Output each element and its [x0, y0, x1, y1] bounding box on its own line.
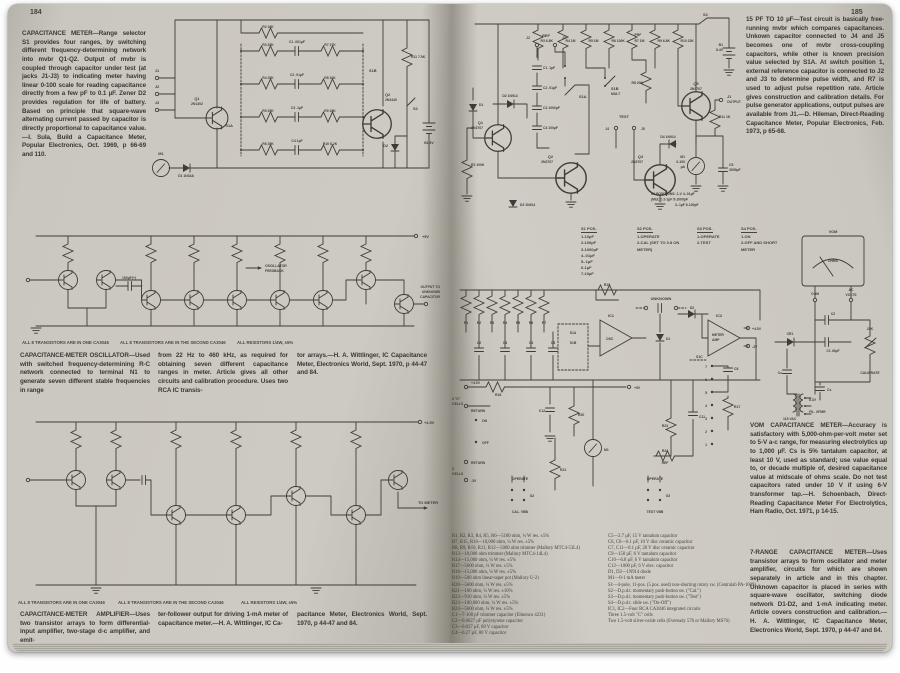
s3-header: S3 POS. — [697, 226, 713, 233]
lbl-s1a: S1A — [579, 94, 587, 99]
capacitor-c8 — [724, 368, 733, 372]
lbl-cells1a: 3 "C" — [452, 397, 461, 401]
zener-d2 — [391, 144, 399, 151]
page-number-left: 184 — [30, 9, 42, 16]
lbl-j3: J3 — [562, 36, 566, 40]
lbl-calibrate: CALIBRATE — [860, 371, 880, 375]
neg-terminal — [464, 478, 467, 481]
lbl-150uf: 150µF(+) — [122, 276, 136, 280]
lbl-b1v: 8.4V — [716, 48, 724, 52]
lbl-feedback-1: OSCILLATOR — [265, 264, 287, 268]
diode-d1 — [183, 164, 190, 172]
lbl-q3-type: 2N3707 — [631, 160, 643, 164]
note-ca3046-one: ALL 8 TRANSISTORS ARE IN ONE CA3046 — [22, 340, 109, 345]
lbl-osc: OSC — [606, 337, 614, 341]
parts-list-col2: C5—2.7 µF, 15 V tantalum capacitor C6, C… — [608, 534, 758, 625]
resistor-r9 — [319, 112, 342, 122]
lbl-r5: R5 1M — [589, 39, 599, 43]
unknown-capacitor — [658, 304, 662, 313]
resistor-r6 — [526, 294, 536, 317]
five-v-terminal — [627, 385, 630, 388]
lbl-s2: S2 — [703, 12, 709, 17]
lbl-output-2: UNKNOWN — [422, 290, 441, 294]
lbl-c4: C4 100µF — [543, 126, 558, 130]
lbl-j2: J2 — [526, 36, 530, 40]
note-ca3046-second: ALL 8 TRANSISTORS ARE IN THE SECOND CA30… — [120, 340, 226, 345]
capacitor-c1 — [533, 66, 542, 70]
lbl-c1: C1 .001µF — [289, 40, 305, 44]
lbl-j1: J1 — [155, 68, 160, 73]
range7-caption: 7-RANGE CAPACITANCE METER—Uses transisto… — [750, 549, 887, 635]
lbl-c5v: 3000µF — [729, 168, 741, 172]
lbl-b1: B1 — [719, 43, 723, 47]
transistor-q5 — [682, 92, 711, 121]
jack-j2 — [535, 43, 538, 46]
resistor-r3 — [257, 46, 280, 56]
lbl-ic1: IC1 — [608, 313, 615, 318]
lbl-m1: M1 — [158, 151, 164, 156]
oscillator-caption-col2: from 22 Hz to 460 kHz, as required for o… — [158, 352, 288, 395]
lbl-pot: 25K — [867, 327, 874, 331]
capacitor-c12 — [546, 408, 555, 412]
lbl-q1: Q1 — [194, 96, 200, 101]
meter-m1 — [585, 440, 602, 457]
lbl-s1c: S1C — [696, 355, 703, 359]
lbl-m3b: -3V — [471, 479, 477, 483]
lbl-j2: J2 — [155, 84, 160, 89]
lbl-p45: +4.5V — [752, 327, 762, 331]
lbl-d1: D1 1N34A — [178, 174, 194, 178]
note-resistors: ALL RESISTORS 1/4W, ±5% — [237, 340, 293, 345]
resistor-r2 — [474, 294, 484, 317]
right-page: 185 — [450, 4, 892, 652]
jack-j3 — [553, 43, 556, 46]
oscillator-caption-col1: CAPACITANCE-METER OSCILLATOR—Used with s… — [20, 352, 150, 395]
wires — [460, 290, 760, 490]
lbl-mult: MULT — [611, 92, 621, 96]
capacitor-c2 — [295, 80, 299, 89]
lbl-cal: CAL. VBB — [512, 510, 529, 514]
lbl-m1: M1 — [680, 155, 685, 159]
lbl-s2: S2 — [413, 106, 419, 111]
lbl-off: OFF — [482, 441, 489, 445]
transistor-q2 — [363, 110, 392, 139]
lbl-m3: -3V — [752, 345, 758, 349]
diode-d4 — [669, 140, 676, 148]
capacitor-c5 — [549, 348, 558, 352]
lbl-r11: R11 1K — [719, 115, 731, 119]
lbl-r2: R2 — [477, 321, 481, 325]
capacitor-c3 — [533, 106, 542, 110]
part-item: Two 1.5-volt silver-oxide cells (Everead… — [608, 619, 758, 625]
lbl-volts: VOLTS — [845, 293, 857, 297]
capacitor-c1 — [825, 338, 829, 347]
fifteen-pf-caption: 15 PF TO 10 µF—Test circuit is basically… — [746, 16, 884, 137]
capacitor-c3 — [295, 113, 299, 122]
lbl-output-3: CAPACITOR — [420, 295, 440, 299]
supply-terminal — [414, 234, 417, 237]
s1-positions-table: S1 POS. 1-10pF 2-100pF 3-1000pF 4-.01µF … — [581, 226, 627, 278]
part-item: S1—4-pole, 11-pos. (5 pos. used) non-sho… — [608, 583, 758, 589]
to-meter-arrow — [424, 506, 428, 510]
lbl-operate2: OPERATE — [647, 477, 664, 481]
capacitor-150uf — [128, 282, 132, 291]
page-number-right: 185 — [851, 9, 863, 16]
ground — [31, 328, 41, 333]
com-terminal — [813, 298, 816, 301]
part-item: C4—0.27 µF, 80 V capacitor — [452, 631, 604, 637]
battery-b1 — [423, 123, 435, 134]
return-terminal — [464, 404, 467, 407]
jack-j5 — [632, 126, 635, 129]
battery-b1 — [723, 48, 735, 59]
lbl-pos3: 3 — [705, 417, 707, 421]
resistor-r7 — [319, 46, 342, 56]
resistor-r5 — [513, 294, 523, 317]
left-page: 184 CAPACITANCE METER—Range selector S1 … — [8, 4, 450, 652]
diode-cr1 — [787, 338, 794, 346]
lbl-to-meter: TO METER — [418, 500, 438, 505]
lbl-fil-xfmr: FIL. XFMR — [809, 410, 826, 414]
amplifier-caption-col3: pacitance Meter, Electronics World, Sept… — [297, 611, 427, 628]
lbl-cx: Cx — [778, 371, 782, 375]
lbl-d2: D2 — [690, 306, 694, 310]
open-book: 184 CAPACITANCE METER—Range selector S1 … — [8, 4, 892, 652]
lbl-pos7: 7 — [705, 365, 707, 369]
note-ca3046-second-2: ALL 8 TRANSISTORS ARE IN THE SECOND CA30… — [118, 600, 224, 605]
ground — [91, 588, 101, 593]
jack-j1 — [719, 98, 722, 101]
lbl-j5: J5 — [641, 127, 645, 131]
vom-caption: VOM CAPACITANCE METER—Accuracy is satisf… — [750, 422, 887, 517]
resistor-r3 — [487, 294, 497, 317]
meter-m1 — [688, 158, 705, 175]
lbl-s1b: S1B — [611, 86, 619, 91]
capacitor-c4 — [295, 146, 299, 155]
lbl-r24: R24 — [662, 449, 668, 453]
jack-j4 — [614, 126, 617, 129]
capacitor-c3 — [501, 348, 510, 352]
resistor-r4 — [257, 79, 280, 89]
transistor-q3 — [645, 165, 675, 195]
lbl-return2: RETURN — [471, 461, 486, 465]
lbl-q1-type: 2N1302 — [191, 102, 203, 106]
return-terminal — [464, 460, 467, 463]
lbl-c4: C4 1µF — [291, 139, 302, 143]
lbl-s2: S2 — [530, 494, 534, 498]
capacitor-c2 — [533, 86, 542, 90]
lbl-pos4: 4 — [705, 404, 707, 408]
resistor-r4 — [500, 294, 510, 317]
resistor-r1 — [461, 294, 471, 317]
lbl-r10: R10 8.2K — [323, 142, 338, 146]
lbl-s1b: S1B — [570, 341, 577, 345]
calibrate-pot — [865, 334, 875, 357]
jack-j1 — [155, 76, 158, 79]
unknown-terminal — [674, 306, 677, 309]
lbl-m1-unit: µA — [681, 165, 686, 169]
capacitor-c2 — [825, 316, 829, 325]
lbl-c1: C1 .1µF — [543, 66, 555, 70]
ground — [545, 436, 555, 441]
lbl-c12: C12 — [539, 409, 545, 413]
jack-j3 — [155, 108, 158, 111]
ac-volts-terminal — [849, 298, 852, 301]
lbl-unknown: UNKNOWN — [651, 296, 672, 301]
lbl-s3: S3 — [666, 494, 670, 498]
note-ca3046-one-2: ALL 8 TRANSISTORS ARE IN ONE CA3046 — [18, 600, 105, 605]
book-photo: 184 CAPACITANCE METER—Range selector S1 … — [0, 0, 900, 673]
transistor-q2 — [556, 163, 586, 193]
s2-row: 2-CAL (SET TO 0.8 ON METER) — [637, 240, 693, 252]
amplifier-schematic: +4.5V TO METER — [16, 408, 442, 598]
lbl-45v: +4.5V — [424, 420, 435, 425]
lbl-r7: R7 1M — [635, 39, 645, 43]
vom-schematic: VOM OHMS COM AC VOLTS C2 C1 40µF CR1 25K… — [775, 224, 889, 420]
lbl-c3: C3 — [503, 341, 507, 345]
lbl-d3: D3 1N914 — [520, 203, 535, 207]
lbl-cs: Cs — [827, 388, 831, 392]
capacitor-c4 — [533, 126, 542, 130]
transformer — [793, 394, 806, 416]
lbl-r10: R10 22K — [681, 39, 695, 43]
lbl-c5: C5 — [551, 341, 555, 345]
lbl-ac: AC — [849, 288, 854, 292]
lbl-r4: R4 — [503, 321, 507, 325]
resistor-r18 — [484, 382, 507, 392]
lbl-s1-pos-2: (MULT) 2-1µF 5-1000pF — [651, 198, 688, 202]
note-resistors-2: ALL RESISTORS 1/4W, ±5% — [241, 600, 297, 605]
lbl-r11: R11 7.5K — [411, 55, 426, 59]
lbl-r21: R21 — [560, 468, 566, 472]
lbl-d2: D2 — [383, 143, 389, 148]
input-terminal — [26, 478, 29, 481]
lbl-r2: R2 100K — [471, 163, 485, 167]
lbl-s1b: S1B — [369, 68, 377, 73]
lbl-output: OUTPUT — [727, 100, 742, 104]
lbl-d2: D2 1N914 — [502, 94, 517, 98]
lbl-p45b: +4.5V — [471, 381, 481, 385]
lbl-j4: J4 — [605, 127, 609, 131]
lbl-q1: Q1 — [478, 120, 484, 125]
s3-positions-table: S3 POS. 1-OPERATE 2-TEST — [697, 226, 737, 247]
lbl-pos1: 1 — [705, 443, 707, 447]
lbl-c8: C8 — [734, 367, 738, 371]
lbl-r4: R4 1M — [566, 39, 576, 43]
diode-d1 — [469, 104, 477, 111]
lbl-output-1: OUTPUT TO — [420, 285, 440, 289]
lbl-p5: +5V — [634, 386, 641, 390]
lbl-m1-scale: 0-100 — [676, 160, 685, 164]
lbl-d4: D4 1N914 — [660, 135, 675, 139]
lbl-meter-amp1: METER — [712, 333, 724, 337]
lbl-cells2b: CELLS — [452, 472, 464, 476]
lbl-cells2a: 2 — [452, 467, 454, 471]
lbl-b1: B1 9V — [424, 141, 434, 145]
lbl-q5-type: 2N3707 — [690, 87, 702, 91]
s1-row: 7-10µF — [581, 271, 627, 277]
lbl-q2-type: 2N2440 — [385, 98, 397, 102]
lbl-s1-pos-1: S1 POSITIONS: 1-V 4-.01µF — [651, 192, 695, 196]
lbl-r4: R4 25K — [262, 76, 274, 80]
lbl-pos6: 6 — [705, 378, 707, 382]
lbl-r3: R3 25K — [262, 43, 274, 47]
lbl-r3: R3 — [490, 321, 494, 325]
diode-d2 — [688, 310, 695, 318]
lbl-r3: R3 6.8K — [541, 39, 554, 43]
lbl-c4: C4 — [529, 341, 533, 345]
resistor-r2 — [257, 28, 280, 38]
lbl-q3: Q3 — [638, 154, 644, 159]
capacitor-c5 — [719, 168, 728, 172]
lbl-r20: R20 — [578, 413, 584, 417]
page-edges — [13, 643, 887, 652]
lbl-feedback-2: FEEDBACK — [265, 269, 284, 273]
lbl-115vac: 115 VAC — [783, 417, 797, 421]
capacitor-c4 — [527, 348, 536, 352]
lbl-cr1: CR1 — [787, 332, 794, 336]
lbl-d1: D1 — [666, 337, 670, 341]
lbl-r23: R23 — [662, 424, 668, 428]
lbl-meter-amp2: AMP — [712, 338, 720, 342]
lbl-ohms: OHMS — [828, 259, 839, 263]
lbl-on: ON — [482, 419, 488, 423]
capacitor-c2 — [475, 348, 484, 352]
lbl-c3: C3 1000pF — [543, 106, 560, 110]
lbl-s1-pos-3: 3-.1µF 6-100pF — [675, 203, 699, 207]
oscillator-schematic: +5V OSCILLATOR FEEDBACK OUTPUT TO UNKNOW… — [16, 220, 442, 340]
lbl-testv: TEST VBB — [647, 510, 664, 514]
lbl-c3: C3 .1µF — [291, 106, 303, 110]
lbl-q5: Q5 — [693, 81, 699, 86]
resistor-r8 — [319, 79, 342, 89]
lbl-s1a: S1A — [225, 123, 233, 128]
lbl-prf: PRF — [635, 33, 642, 37]
lbl-m1: M1 — [604, 448, 609, 452]
lbl-vom: VOM — [829, 229, 838, 234]
lbl-com: COM — [811, 292, 819, 296]
s4-header: S4 POS. — [741, 226, 757, 233]
unknown-terminal — [644, 306, 647, 309]
wires — [775, 286, 870, 414]
lbl-pos5: 5 — [705, 391, 707, 395]
lbl-operate1: OPERATE — [512, 477, 529, 481]
lbl-q2-type: 2N3707 — [541, 160, 553, 164]
lbl-q1-type: 2N3707 — [471, 126, 483, 130]
lbl-c2: C2 — [477, 341, 481, 345]
lbl-j1: J1 — [727, 94, 732, 99]
lbl-r1: R1 — [464, 321, 468, 325]
parts-list-col1: R1, R2, R3, R4, R5, R6—5100 ohm, ¼ W res… — [452, 534, 604, 637]
lbl-cells1b: CELLS — [452, 402, 464, 406]
lbl-r17: R17 — [734, 405, 740, 409]
resistor-r21 — [550, 458, 560, 481]
lbl-c5: C5 — [729, 163, 733, 167]
lbl-c2: C2 .01µF — [543, 86, 557, 90]
s1-header: S1 POS. — [581, 226, 597, 233]
lbl-r7: R7 — [542, 321, 546, 325]
capacitor-cx — [783, 370, 792, 374]
lbl-j3: J3 — [155, 100, 160, 105]
transistor-q1 — [485, 125, 512, 152]
capacitance-meter-caption: CAPACITANCE METER—Range selector S1 prov… — [22, 30, 146, 159]
lbl-test: TEST — [619, 114, 630, 119]
resistor-r5 — [257, 112, 280, 122]
lbl-63v: 6.3V — [809, 398, 817, 402]
resistor-r7 — [539, 294, 549, 317]
lbl-d1: D1 — [479, 103, 483, 107]
lbl-ref: REF — [662, 461, 669, 465]
resistor-r11 — [710, 108, 720, 131]
feedback-arrow — [258, 266, 262, 270]
wires — [30, 236, 424, 326]
capacitor-cs — [816, 387, 825, 391]
diode-d1 — [656, 334, 664, 341]
lbl-5v: +5V — [422, 234, 429, 239]
lbl-c2: C2 .01µF — [290, 73, 304, 77]
lbl-r6: R6 — [529, 321, 533, 325]
lbl-ic2: IC2 — [716, 313, 723, 318]
lbl-c2: C2 — [831, 312, 835, 316]
lbl-r7: R7 27K — [324, 43, 336, 47]
jack-j2 — [155, 92, 158, 95]
coupling-capacitor — [142, 476, 146, 485]
lbl-q2: Q2 — [548, 154, 554, 159]
lbl-s1a: S1A — [570, 331, 577, 335]
input-terminal — [26, 278, 29, 281]
s2-positions-table: S2 POS. 1-OPERATE 2-CAL (SET TO 0.8 ON M… — [637, 226, 693, 253]
supply-terminal — [418, 420, 421, 423]
lbl-r5: R5 25K — [262, 109, 274, 113]
amplifier-caption-col2: ter-follower output for driving 1-mA met… — [158, 611, 288, 628]
capacitor-c1 — [295, 47, 299, 56]
amplifier-caption-col1: CAPACITANCE-METER AMPLIFIER—Uses two tra… — [20, 611, 150, 646]
resistor-r6 — [257, 145, 280, 155]
resistor-r17 — [723, 396, 733, 419]
lbl-r9: R9 6.8K — [658, 39, 671, 43]
lbl-r9: R9 18K — [324, 109, 336, 113]
output-terminal — [424, 302, 427, 305]
lbl-r19: R19 — [604, 283, 610, 287]
ground — [311, 588, 321, 593]
lbl-r18: R18 — [495, 393, 501, 397]
meter-m1 — [153, 160, 170, 177]
ic1-triangle — [600, 320, 632, 356]
supply-terminal — [464, 385, 467, 388]
mvbr-test-schematic: R3 6.8K R4 1M R5 1M R6 100K PRF R7 1M R9… — [453, 8, 745, 214]
lbl-ref: REF — [542, 33, 550, 38]
capacitance-meter-schematic: J1 J2 J3 Q1 2N1302 Q2 2N2440 S1A S1B R2 … — [145, 6, 445, 208]
lbl-c1: C1 40µF — [826, 349, 839, 353]
resistor-r10 — [319, 145, 342, 155]
wires — [30, 422, 426, 585]
diode-d2 — [507, 100, 514, 108]
lbl-r2: R2 18K — [262, 25, 274, 29]
resistor-r2 — [462, 158, 472, 181]
diode-d3 — [509, 200, 517, 207]
lbl-return1: RETURN — [471, 409, 486, 413]
lbl-r8: R8 20K — [632, 81, 644, 85]
lbl-r8: R8 10K — [324, 76, 336, 80]
s3-row: 2-TEST — [697, 240, 737, 246]
oscillator-caption-col3: tor arrays.—H. A. Wittlinger, IC Capacit… — [297, 352, 427, 378]
lbl-r6: R6 100K — [612, 39, 626, 43]
lbl-r5: R5 — [516, 321, 520, 325]
s2-header: S2 POS. — [637, 226, 653, 233]
lbl-pos2: 2 — [705, 430, 707, 434]
capacitor-c11 — [689, 412, 698, 416]
lbl-r6: R6 25K — [262, 142, 274, 146]
